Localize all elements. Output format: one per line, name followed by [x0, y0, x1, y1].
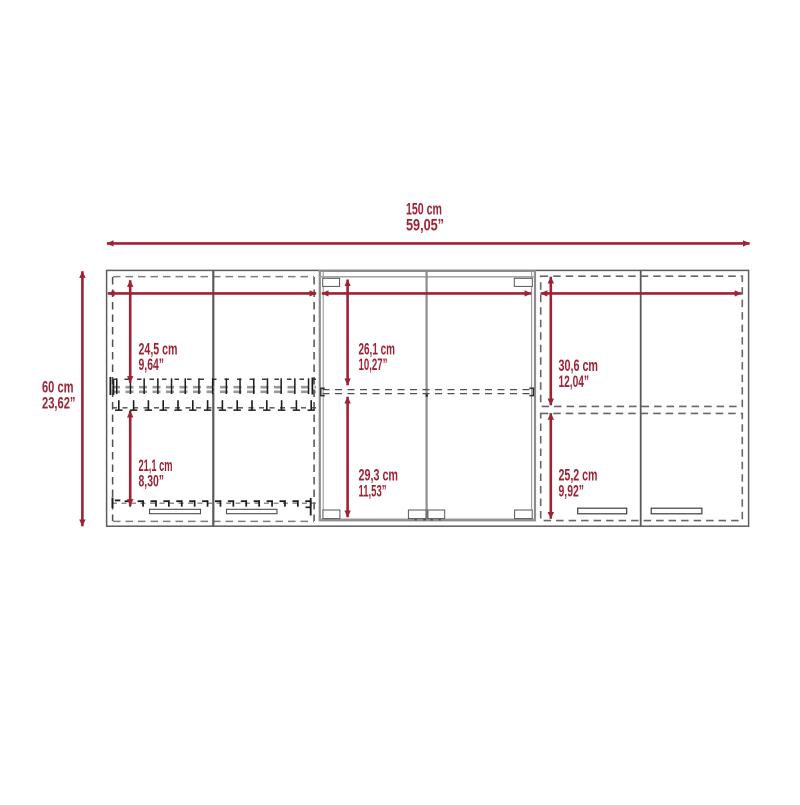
svg-text:9,92”: 9,92” — [559, 482, 585, 501]
svg-text:11,53”: 11,53” — [359, 482, 387, 501]
svg-text:12,04”: 12,04” — [559, 372, 590, 391]
svg-text:10,27”: 10,27” — [359, 355, 388, 374]
svg-text:23,62”: 23,62” — [42, 394, 76, 413]
svg-text:9,64”: 9,64” — [139, 355, 165, 374]
svg-text:59,05”: 59,05” — [406, 216, 444, 235]
svg-text:8,30”: 8,30” — [139, 472, 165, 491]
